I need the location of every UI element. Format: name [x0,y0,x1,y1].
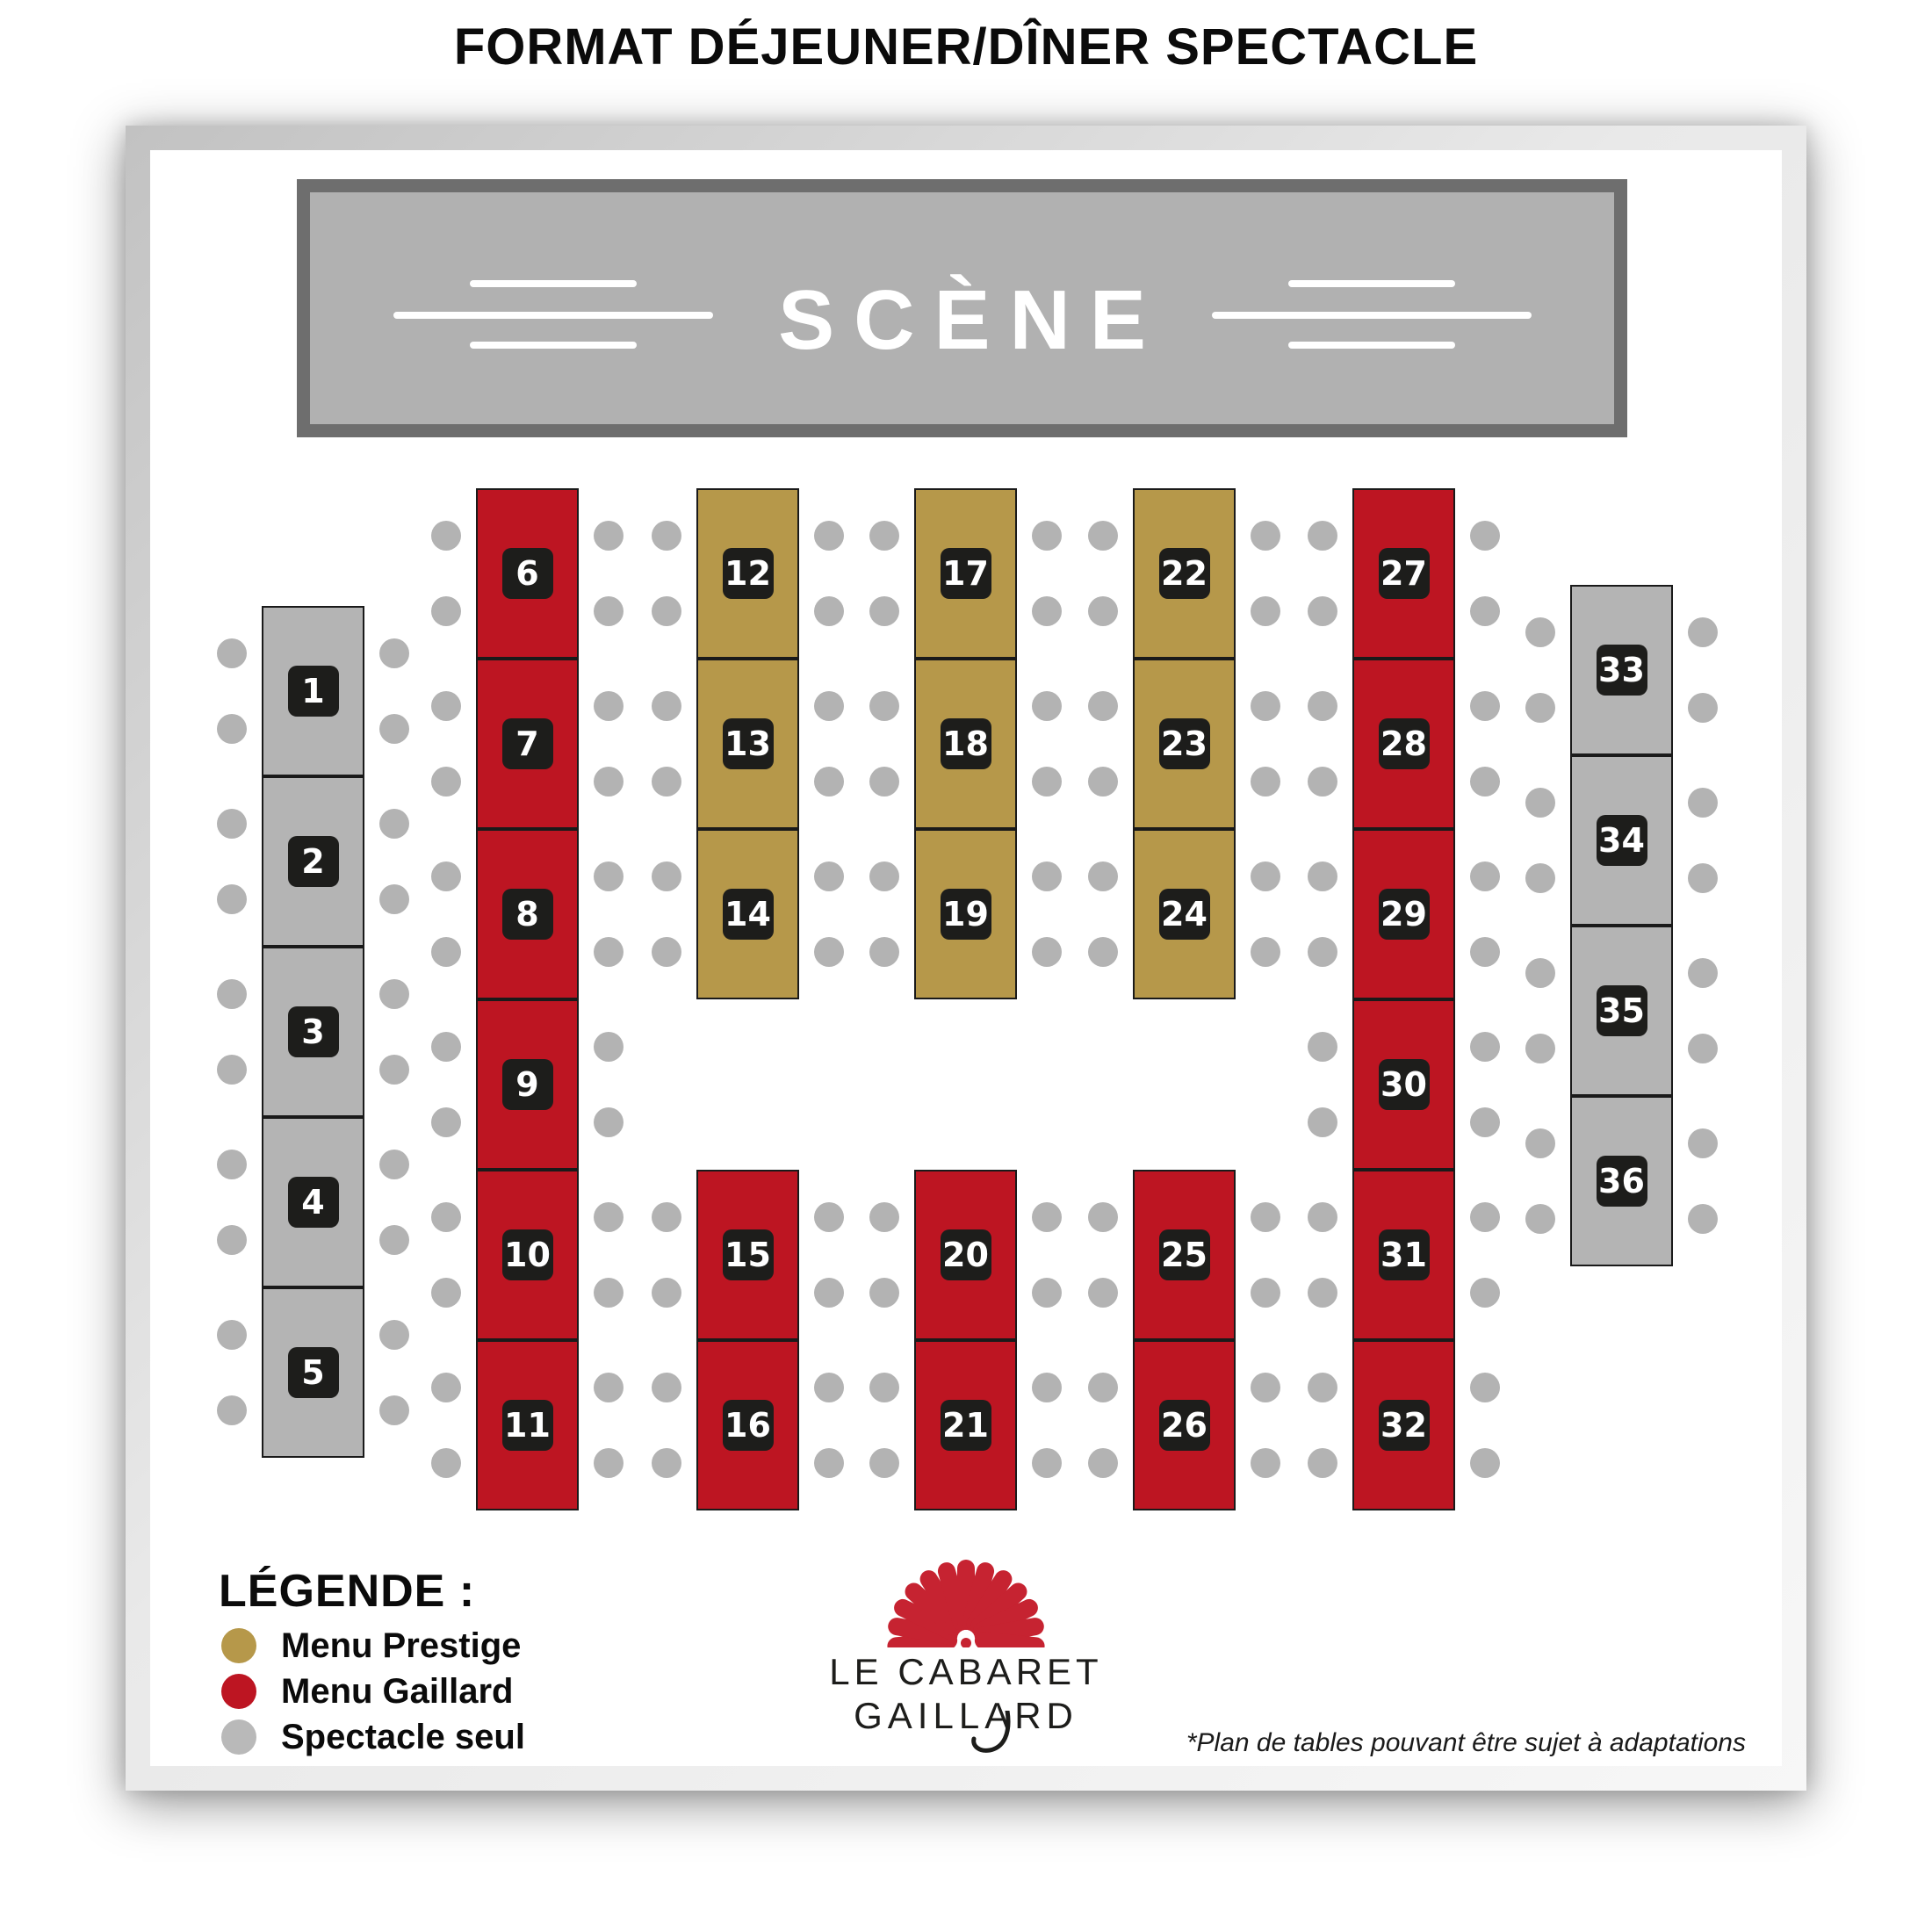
chair-dot [652,767,681,797]
chair-dot [1308,1448,1337,1478]
chair-dot [1470,1448,1500,1478]
table-32-badge: 32 [1379,1400,1430,1451]
table-11: 11 [476,1340,579,1510]
chair-dot [652,937,681,967]
chair-dot [1308,691,1337,721]
table-23: 23 [1133,659,1236,829]
table-24-badge: 24 [1159,889,1210,940]
chair-dot [594,1202,624,1232]
chair-dot [1470,1107,1500,1137]
chair-dot [1470,1032,1500,1062]
chair-dot [869,691,899,721]
table-14-badge: 14 [723,889,774,940]
chair-dot [1470,1278,1500,1308]
chair-dot [1525,693,1555,723]
chair-dot [594,1107,624,1137]
chair-dot [1470,691,1500,721]
chair-dot [431,1448,461,1478]
chair-dot [814,1448,844,1478]
chair-dot [217,1320,247,1350]
chair-dot [1308,861,1337,891]
chair-dot [869,767,899,797]
table-21: 21 [914,1340,1017,1510]
chair-dot [1308,937,1337,967]
table-31: 31 [1352,1170,1455,1340]
chair-dot [594,1373,624,1402]
chair-dot [652,1373,681,1402]
chair-dot [652,861,681,891]
logo-text-line1: LE CABARET [790,1651,1142,1693]
chair-dot [217,1395,247,1425]
gaillard-color-dot-icon [221,1674,256,1709]
chair-dot [594,691,624,721]
chair-dot [594,596,624,626]
page-title: FORMAT DÉJEUNER/DÎNER SPECTACLE [0,18,1932,76]
chair-dot [379,1055,409,1085]
table-11-badge: 11 [502,1400,553,1451]
chair-dot [1470,937,1500,967]
table-33-badge: 33 [1597,645,1647,696]
chair-dot [1032,1448,1062,1478]
legend-item-gaillard: Menu Gaillard [221,1670,514,1712]
chair-dot [814,767,844,797]
chair-dot [814,691,844,721]
chair-dot [814,937,844,967]
chair-dot [217,1225,247,1255]
table-10: 10 [476,1170,579,1340]
chair-dot [594,1032,624,1062]
chair-dot [431,1278,461,1308]
table-25: 25 [1133,1170,1236,1340]
table-35: 35 [1570,926,1673,1096]
table-1-badge: 1 [288,666,339,717]
table-27: 27 [1352,488,1455,659]
chair-dot [379,809,409,839]
chair-dot [1308,1202,1337,1232]
chair-dot [869,861,899,891]
chair-dot [652,691,681,721]
chair-dot [431,937,461,967]
table-17-badge: 17 [941,548,991,599]
chair-dot [379,979,409,1009]
seating-plan-page: FORMAT DÉJEUNER/DÎNER SPECTACLE SCÈNE 12… [0,0,1932,1932]
chair-dot [869,1448,899,1478]
chair-dot [1088,1448,1118,1478]
table-10-badge: 10 [502,1229,553,1280]
chair-dot [652,596,681,626]
chair-dot [379,1320,409,1350]
table-6-badge: 6 [502,548,553,599]
chair-dot [1088,691,1118,721]
chair-dot [1251,1278,1280,1308]
chair-dot [1308,1107,1337,1137]
table-28: 28 [1352,659,1455,829]
chair-dot [1032,1278,1062,1308]
table-15-badge: 15 [723,1229,774,1280]
chair-dot [869,1278,899,1308]
chair-dot [431,1107,461,1137]
table-7-badge: 7 [502,718,553,769]
chair-dot [1088,1373,1118,1402]
table-29: 29 [1352,829,1455,999]
chair-dot [1032,1202,1062,1232]
table-4: 4 [262,1117,364,1287]
table-19: 19 [914,829,1017,999]
chair-dot [379,884,409,914]
table-16: 16 [696,1340,799,1510]
chair-dot [1688,788,1718,818]
table-32: 32 [1352,1340,1455,1510]
table-25-badge: 25 [1159,1229,1210,1280]
table-20: 20 [914,1170,1017,1340]
table-13-badge: 13 [723,718,774,769]
table-26: 26 [1133,1340,1236,1510]
table-8: 8 [476,829,579,999]
chair-dot [1525,1034,1555,1063]
table-15: 15 [696,1170,799,1340]
chair-dot [594,521,624,551]
chair-dot [379,1150,409,1179]
chair-dot [379,638,409,668]
chair-dot [217,884,247,914]
table-4-badge: 4 [288,1177,339,1228]
table-31-badge: 31 [1379,1229,1430,1280]
logo-j-flourish-icon [970,1711,1023,1756]
chair-dot [1032,596,1062,626]
table-3: 3 [262,947,364,1117]
table-12-badge: 12 [723,548,774,599]
cabaret-logo: LE CABARET GAILLARD [790,1554,1142,1737]
table-2: 2 [262,776,364,947]
chair-dot [814,596,844,626]
table-22: 22 [1133,488,1236,659]
chair-dot [1308,1032,1337,1062]
chair-dot [1525,617,1555,647]
chair-dot [1525,863,1555,893]
chair-dot [431,596,461,626]
table-16-badge: 16 [723,1400,774,1451]
chair-dot [431,521,461,551]
chair-dot [1251,767,1280,797]
table-5-badge: 5 [288,1347,339,1398]
chair-dot [217,809,247,839]
table-26-badge: 26 [1159,1400,1210,1451]
chair-dot [1525,1204,1555,1234]
chair-dot [814,1373,844,1402]
chair-dot [217,1055,247,1085]
chair-dot [1032,1373,1062,1402]
table-22-badge: 22 [1159,548,1210,599]
chair-dot [1470,1202,1500,1232]
table-24: 24 [1133,829,1236,999]
chair-dot [1688,617,1718,647]
chair-dot [1251,596,1280,626]
fan-logo-icon [883,1554,1049,1647]
chair-dot [869,1373,899,1402]
chair-dot [869,1202,899,1232]
table-12: 12 [696,488,799,659]
chair-dot [431,1373,461,1402]
chair-dot [1470,767,1500,797]
table-8-badge: 8 [502,889,553,940]
chair-dot [869,937,899,967]
chair-dot [1308,1278,1337,1308]
chair-dot [1032,937,1062,967]
table-3-badge: 3 [288,1006,339,1057]
legend-item-label: Menu Gaillard [281,1670,514,1712]
chair-dot [379,1395,409,1425]
chair-dot [1470,596,1500,626]
chair-dot [594,861,624,891]
chair-dot [1088,596,1118,626]
chair-dot [1251,1373,1280,1402]
table-34: 34 [1570,755,1673,926]
chair-dot [1032,691,1062,721]
chair-dot [217,638,247,668]
chair-dot [1251,521,1280,551]
chair-dot [1525,788,1555,818]
chair-dot [1470,1373,1500,1402]
chair-dot [1032,861,1062,891]
chair-dot [652,1448,681,1478]
table-5: 5 [262,1287,364,1458]
chair-dot [814,521,844,551]
chair-dot [1308,767,1337,797]
table-27-badge: 27 [1379,548,1430,599]
stage: SCÈNE [297,179,1627,437]
chair-dot [431,691,461,721]
spectacle-color-dot-icon [221,1719,256,1755]
chair-dot [1088,937,1118,967]
table-29-badge: 29 [1379,889,1430,940]
chair-dot [1688,693,1718,723]
chair-dot [379,714,409,744]
chair-dot [1251,691,1280,721]
chair-dot [1032,521,1062,551]
table-20-badge: 20 [941,1229,991,1280]
chair-dot [814,861,844,891]
table-18-badge: 18 [941,718,991,769]
chair-dot [652,1202,681,1232]
chair-dot [1688,958,1718,988]
chair-dot [1688,1034,1718,1063]
legend-item-spectacle: Spectacle seul [221,1716,525,1758]
table-13: 13 [696,659,799,829]
chair-dot [594,1278,624,1308]
chair-dot [1088,521,1118,551]
table-2-badge: 2 [288,836,339,887]
chair-dot [217,714,247,744]
chair-dot [1470,521,1500,551]
chair-dot [1688,1128,1718,1158]
footnote: *Plan de tables pouvant être sujet à ada… [1186,1728,1746,1758]
chair-dot [869,596,899,626]
table-14: 14 [696,829,799,999]
legend-item-label: Spectacle seul [281,1716,525,1758]
table-33: 33 [1570,585,1673,755]
chair-dot [1088,767,1118,797]
table-28-badge: 28 [1379,718,1430,769]
table-1: 1 [262,606,364,776]
table-23-badge: 23 [1159,718,1210,769]
table-6: 6 [476,488,579,659]
chair-dot [652,1278,681,1308]
chair-dot [431,1202,461,1232]
chair-dot [1525,958,1555,988]
chair-dot [1308,521,1337,551]
stage-label: SCÈNE [310,278,1614,363]
table-30: 30 [1352,999,1455,1170]
chair-dot [594,1448,624,1478]
chair-dot [1251,937,1280,967]
chair-dot [814,1278,844,1308]
chair-dot [1251,861,1280,891]
table-36: 36 [1570,1096,1673,1266]
chair-dot [814,1202,844,1232]
chair-dot [1688,863,1718,893]
table-35-badge: 35 [1597,985,1647,1036]
chair-dot [1251,1448,1280,1478]
chair-dot [1308,596,1337,626]
table-17: 17 [914,488,1017,659]
chair-dot [1251,1202,1280,1232]
chair-dot [1088,861,1118,891]
chair-dot [379,1225,409,1255]
chair-dot [431,767,461,797]
chair-dot [1032,767,1062,797]
legend-item-label: Menu Prestige [281,1625,521,1667]
logo-text-line2: GAILLARD [790,1695,1142,1737]
table-18: 18 [914,659,1017,829]
prestige-color-dot-icon [221,1628,256,1663]
chair-dot [1525,1128,1555,1158]
chair-dot [431,1032,461,1062]
legend-item-prestige: Menu Prestige [221,1625,521,1667]
chair-dot [1088,1278,1118,1308]
chair-dot [594,767,624,797]
table-36-badge: 36 [1597,1156,1647,1207]
legend-title: LÉGENDE : [219,1565,475,1618]
chair-dot [652,521,681,551]
table-9-badge: 9 [502,1059,553,1110]
chair-dot [1308,1373,1337,1402]
chair-dot [217,979,247,1009]
chair-dot [1470,861,1500,891]
table-21-badge: 21 [941,1400,991,1451]
table-30-badge: 30 [1379,1059,1430,1110]
chair-dot [217,1150,247,1179]
chair-dot [1688,1204,1718,1234]
table-9: 9 [476,999,579,1170]
chair-dot [594,937,624,967]
table-7: 7 [476,659,579,829]
chair-dot [1088,1202,1118,1232]
table-19-badge: 19 [941,889,991,940]
chair-dot [869,521,899,551]
legend: LÉGENDE : Menu Prestige Menu Gaillard Sp… [219,1565,475,1618]
table-34-badge: 34 [1597,815,1647,866]
chair-dot [431,861,461,891]
